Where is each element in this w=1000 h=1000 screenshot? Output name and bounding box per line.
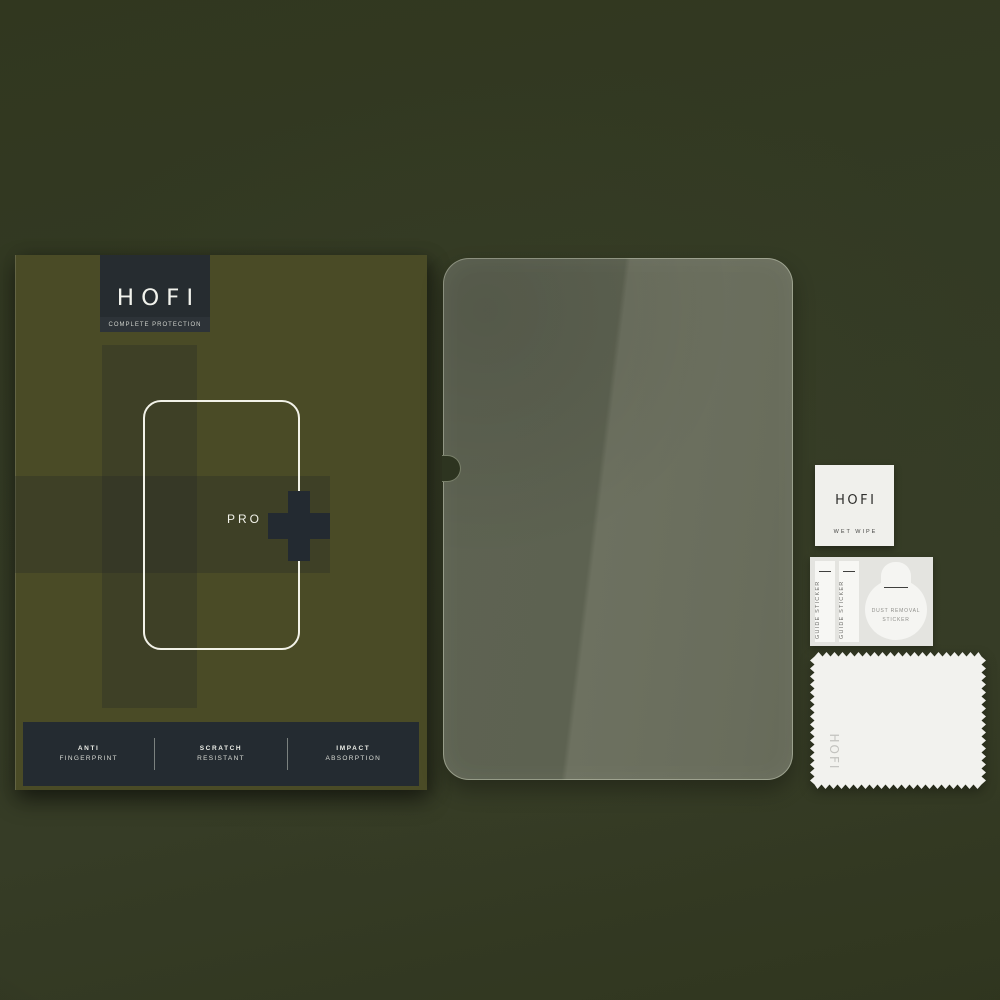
sticker-line (843, 571, 855, 572)
product-box: HOFI COMPLETE PROTECTION PRO ANTI FINGER… (15, 255, 427, 790)
microfiber-cloth: HOFI (810, 652, 986, 789)
tagline-strip: COMPLETE PROTECTION (100, 317, 210, 332)
glass-reflection (443, 258, 793, 780)
sticker-sheet: GUIDE STICKER GUIDE STICKER DUST REMOVAL… (810, 557, 933, 646)
sticker-line (819, 571, 831, 572)
cloth-surface: HOFI (810, 652, 986, 789)
wet-wipe-brand: HOFI (815, 493, 894, 508)
features-bar: ANTI FINGERPRINT SCRATCH RESISTANT IMPAC… (23, 722, 419, 786)
cloth-brand-logo: HOFI (827, 730, 841, 774)
sticker-line (884, 587, 908, 588)
feature-impact-absorption: IMPACT ABSORPTION (288, 744, 419, 764)
glass-protector (443, 258, 793, 780)
wet-wipe-label: WET WIPE (815, 529, 894, 535)
feature-scratch-resistant: SCRATCH RESISTANT (155, 744, 286, 764)
brand-logo-block: HOFI (100, 255, 210, 317)
plus-icon (268, 491, 330, 561)
dust-sticker-label: DUST REMOVAL STICKER (862, 607, 930, 624)
feature-anti-fingerprint: ANTI FINGERPRINT (23, 744, 154, 764)
product-photo: HOFI COMPLETE PROTECTION PRO ANTI FINGER… (0, 0, 1000, 1000)
guide-sticker-label: GUIDE STICKER (839, 581, 859, 639)
wet-wipe-packet: HOFI WET WIPE (815, 465, 894, 546)
guide-sticker-2: GUIDE STICKER (839, 561, 859, 642)
guide-sticker-1: GUIDE STICKER (815, 561, 835, 642)
model-label: PRO (210, 512, 262, 526)
dust-removal-sticker: DUST REMOVAL STICKER (862, 561, 930, 642)
guide-sticker-label: GUIDE STICKER (815, 581, 835, 639)
brand-logo: HOFI (110, 286, 200, 317)
tagline-text: COMPLETE PROTECTION (108, 322, 201, 328)
